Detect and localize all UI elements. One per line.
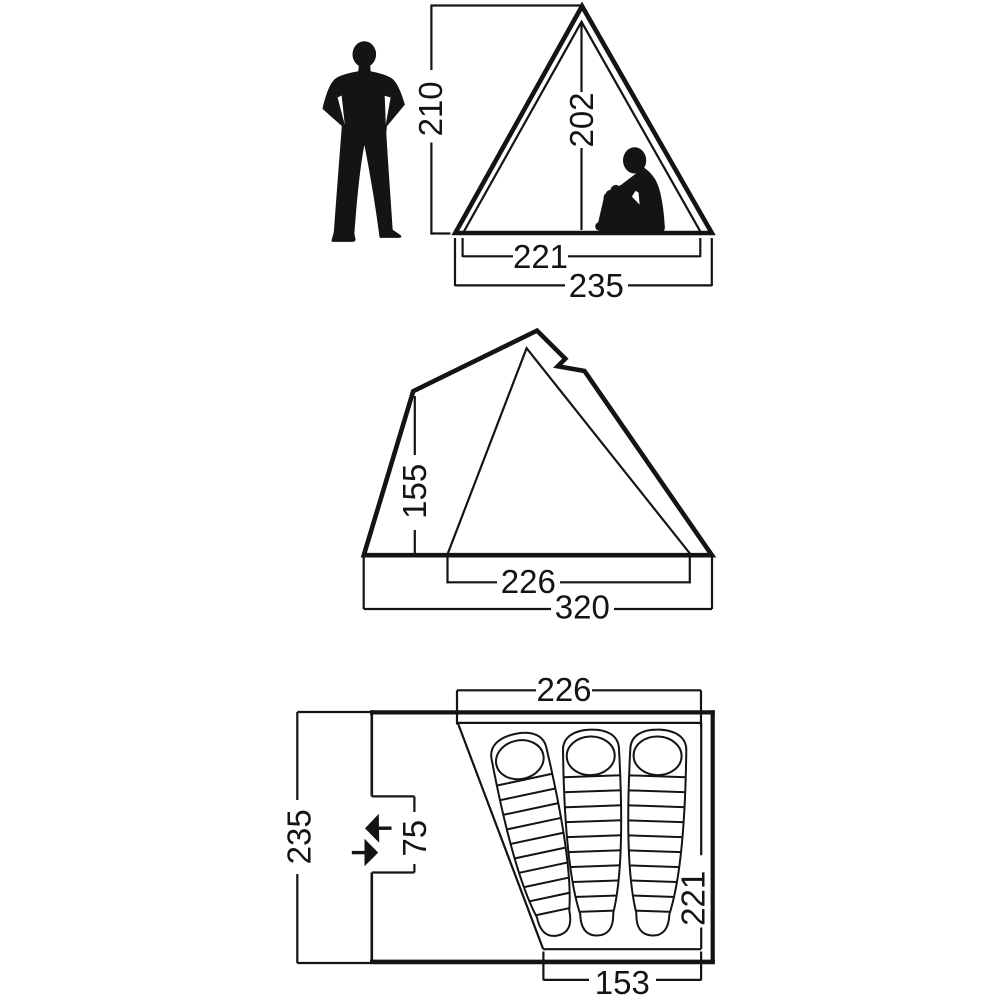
svg-text:75: 75 — [396, 820, 433, 857]
svg-text:320: 320 — [555, 589, 610, 626]
svg-text:202: 202 — [563, 92, 600, 147]
svg-text:235: 235 — [569, 267, 624, 304]
svg-text:226: 226 — [536, 671, 591, 708]
svg-text:210: 210 — [412, 81, 449, 136]
svg-text:155: 155 — [396, 464, 433, 519]
svg-text:235: 235 — [280, 809, 317, 864]
svg-text:153: 153 — [595, 964, 650, 1000]
svg-text:221: 221 — [675, 871, 712, 926]
svg-text:226: 226 — [501, 563, 556, 600]
svg-text:221: 221 — [513, 238, 568, 275]
